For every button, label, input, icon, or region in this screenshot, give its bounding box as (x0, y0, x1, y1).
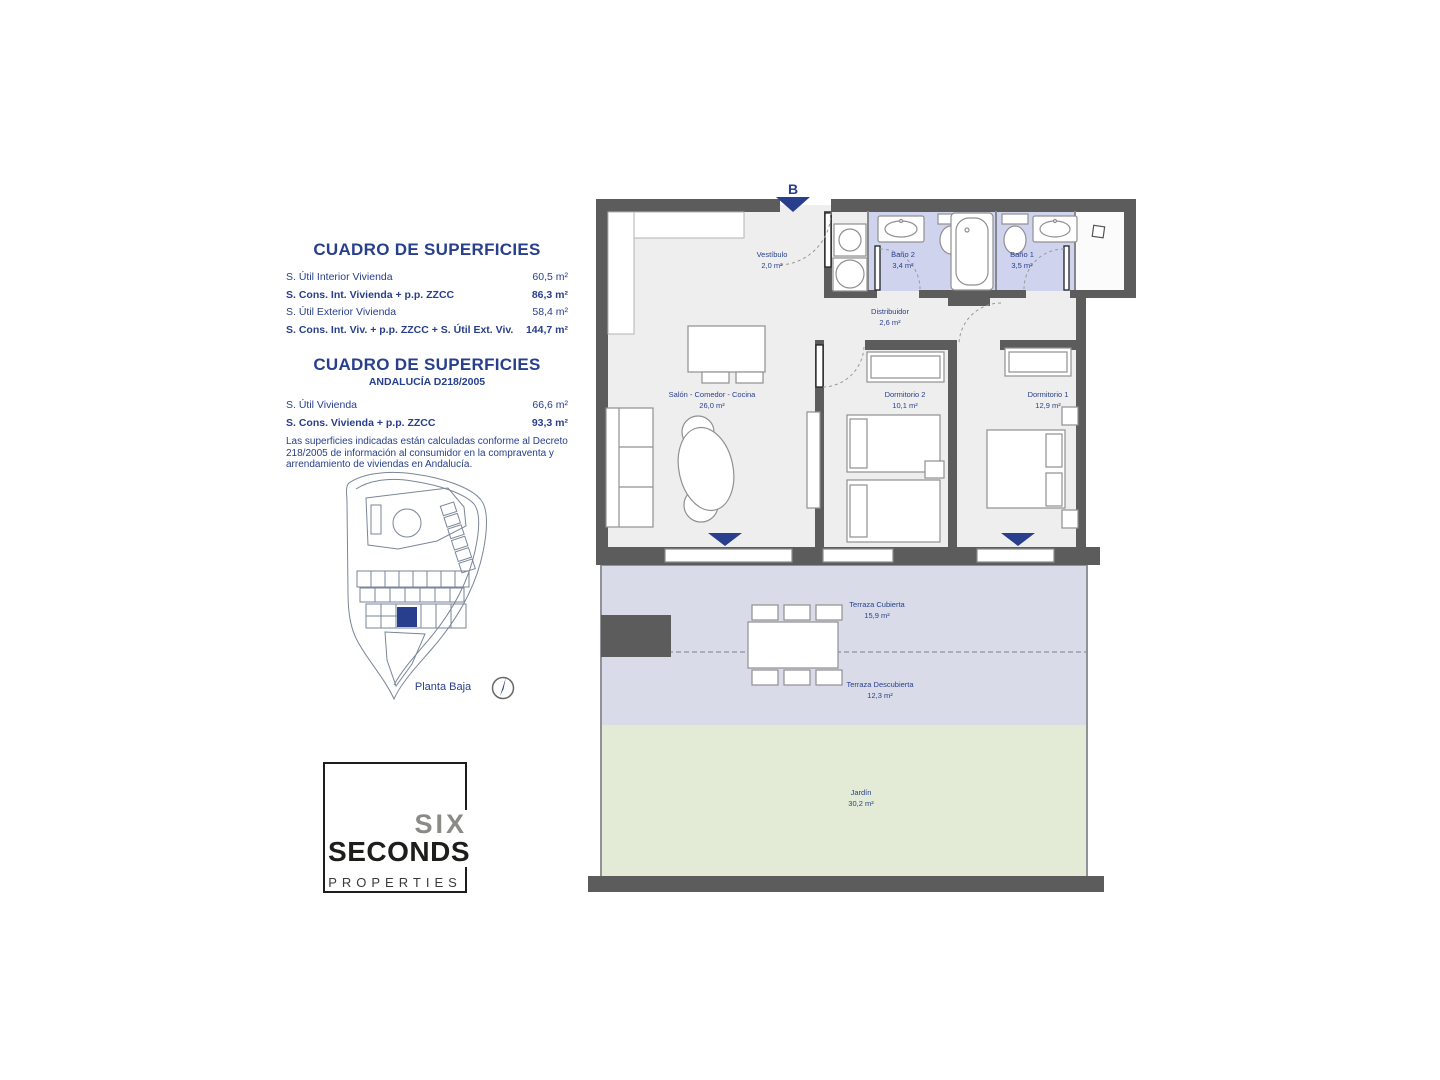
table-row: S. Útil Exterior Vivienda 58,4 m² (286, 304, 568, 322)
row-label: S. Útil Interior Vivienda (286, 269, 393, 287)
surfaces-table-subtitle: ANDALUCÍA D218/2005 (286, 376, 568, 388)
row-value: 93,3 m² (532, 415, 568, 433)
room-name: Baño 2 (891, 250, 915, 261)
room-label-vestibulo: Vestíbulo 2,0 m² (757, 250, 788, 271)
surfaces-table-title: CUADRO DE SUPERFICIES (286, 355, 568, 375)
room-name: Jardín (848, 788, 873, 799)
row-label: S. Cons. Int. Viv. + p.p. ZZCC + S. Útil… (286, 322, 513, 340)
room-name: Vestíbulo (757, 250, 788, 261)
compass-icon (489, 672, 519, 704)
logo-word-six: SIX (412, 810, 469, 838)
logo-word-properties: PROPERTIES (325, 875, 465, 890)
site-plan-drawing (343, 455, 533, 705)
room-name: Dormitorio 1 (1028, 390, 1069, 401)
logo-word-seconds: SECONDS (326, 837, 472, 867)
floorplan-page: CUADRO DE SUPERFICIES S. Útil Interior V… (0, 0, 1440, 1080)
row-label: S. Útil Vivienda (286, 397, 357, 415)
surfaces-table-andalucia: CUADRO DE SUPERFICIES ANDALUCÍA D218/200… (286, 355, 568, 471)
table-row: S. Útil Interior Vivienda 60,5 m² (286, 269, 568, 287)
room-name: Terraza Descubierta (846, 680, 913, 691)
room-area: 10,1 m² (885, 401, 926, 412)
table-row: S. Cons. Int. Vivienda + p.p. ZZCC 86,3 … (286, 287, 568, 305)
room-area: 2,0 m² (757, 261, 788, 272)
company-logo: SIX SECONDS PROPERTIES (323, 762, 467, 893)
room-area: 15,9 m² (849, 611, 904, 622)
room-area: 30,2 m² (848, 799, 873, 810)
windows (665, 549, 1054, 562)
room-label-terraza-descubierta: Terraza Descubierta 12,3 m² (846, 680, 913, 701)
room-label-bano1: Baño 1 3,5 m² (1010, 250, 1034, 271)
room-name: Dormitorio 2 (885, 390, 926, 401)
room-label-dormitorio2: Dormitorio 2 10,1 m² (885, 390, 926, 411)
room-area: 2,6 m² (871, 318, 909, 329)
floor-name-label: Planta Baja (415, 681, 471, 693)
row-label: S. Útil Exterior Vivienda (286, 304, 396, 322)
surfaces-table-title: CUADRO DE SUPERFICIES (286, 240, 568, 260)
room-name: Terraza Cubierta (849, 600, 904, 611)
room-label-terraza-cubierta: Terraza Cubierta 15,9 m² (849, 600, 904, 621)
room-name: Baño 1 (1010, 250, 1034, 261)
room-area: 3,5 m² (1010, 261, 1034, 272)
room-label-salon: Salón - Comedor - Cocina 26,0 m² (669, 390, 756, 411)
surfaces-table: CUADRO DE SUPERFICIES S. Útil Interior V… (286, 240, 568, 339)
table-row: S. Cons. Vivienda + p.p. ZZCC 93,3 m² (286, 415, 568, 433)
room-area: 26,0 m² (669, 401, 756, 412)
row-value: 86,3 m² (532, 287, 568, 305)
room-label-bano2: Baño 2 3,4 m² (891, 250, 915, 271)
room-label-distribuidor: Distribuidor 2,6 m² (871, 307, 909, 328)
room-name: Distribuidor (871, 307, 909, 318)
row-value: 66,6 m² (532, 397, 568, 415)
entrance-marker-label: B (788, 181, 798, 197)
room-name: Salón - Comedor - Cocina (669, 390, 756, 401)
room-label-dormitorio1: Dormitorio 1 12,9 m² (1028, 390, 1069, 411)
row-value: 60,5 m² (532, 269, 568, 287)
row-value: 58,4 m² (532, 304, 568, 322)
room-label-jardin: Jardín 30,2 m² (848, 788, 873, 809)
table-row: S. Cons. Int. Viv. + p.p. ZZCC + S. Útil… (286, 322, 568, 340)
surfaces-table-rows: S. Útil Interior Vivienda 60,5 m² S. Con… (286, 269, 568, 339)
room-area: 12,9 m² (1028, 401, 1069, 412)
highlighted-unit (397, 607, 417, 627)
room-area: 12,3 m² (846, 691, 913, 702)
room-area: 3,4 m² (891, 261, 915, 272)
row-value: 144,7 m² (526, 322, 568, 340)
row-label: S. Cons. Vivienda + p.p. ZZCC (286, 415, 435, 433)
table-row: S. Útil Vivienda 66,6 m² (286, 397, 568, 415)
surfaces-table-rows: S. Útil Vivienda 66,6 m² S. Cons. Vivien… (286, 397, 568, 432)
row-label: S. Cons. Int. Vivienda + p.p. ZZCC (286, 287, 454, 305)
